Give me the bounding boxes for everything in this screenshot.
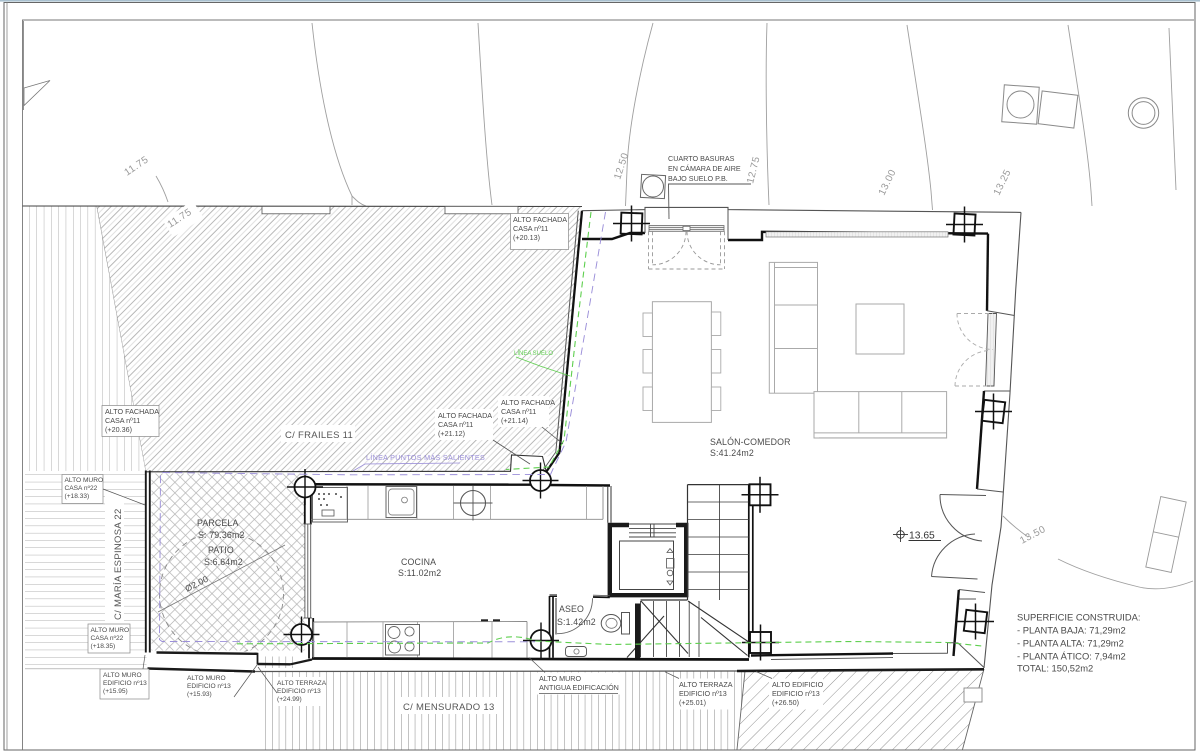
svg-text:- PLANTA BAJA: 71,29m2: - PLANTA BAJA: 71,29m2 (1017, 625, 1126, 636)
svg-text:(+21.12): (+21.12) (438, 429, 465, 438)
svg-text:COCINA: COCINA (401, 557, 436, 567)
svg-text:C/ MENSURADO 13: C/ MENSURADO 13 (403, 702, 495, 713)
svg-text:LÍNEA PUNTOS MÁS SALIENTES: LÍNEA PUNTOS MÁS SALIENTES (366, 453, 485, 462)
svg-text:CASA nº11: CASA nº11 (438, 420, 473, 429)
svg-text:(+15.95): (+15.95) (103, 688, 128, 695)
svg-text:- PLANTA ÁTICO: 7,94m2: - PLANTA ÁTICO: 7,94m2 (1017, 651, 1126, 662)
svg-text:(+20.36): (+20.36) (105, 425, 132, 434)
svg-text:ALTO TERRAZA: ALTO TERRAZA (679, 680, 733, 689)
svg-text:BAJO SUELO P.B.: BAJO SUELO P.B. (668, 174, 728, 183)
svg-text:CASA nº22: CASA nº22 (65, 485, 98, 492)
svg-text:(+18.33): (+18.33) (65, 493, 90, 500)
svg-text:SALÓN-COMEDOR: SALÓN-COMEDOR (710, 437, 791, 447)
svg-text:ALTO FACHADA: ALTO FACHADA (105, 407, 159, 416)
svg-text:ALTO MURO: ALTO MURO (187, 675, 226, 682)
svg-text:LÍNEA SUELO: LÍNEA SUELO (514, 350, 553, 357)
svg-text:CUARTO BASURAS: CUARTO BASURAS (668, 154, 735, 163)
svg-text:ALTO FACHADA: ALTO FACHADA (438, 411, 492, 420)
svg-text:(+20.13): (+20.13) (513, 233, 540, 242)
svg-text:PARCELA: PARCELA (197, 518, 238, 528)
svg-text:TOTAL: 150,52m2: TOTAL: 150,52m2 (1017, 663, 1093, 674)
svg-text:C/ MARÍA ESPINOSA 22: C/ MARÍA ESPINOSA 22 (113, 508, 124, 620)
svg-text:- PLANTA ALTA: 71,29m2: - PLANTA ALTA: 71,29m2 (1017, 638, 1124, 649)
svg-text:EDIFICIO nº13: EDIFICIO nº13 (277, 688, 321, 695)
svg-text:CASA nº11: CASA nº11 (105, 416, 140, 425)
svg-text:(+24.99): (+24.99) (277, 696, 302, 703)
svg-text:ALTO TERRAZA: ALTO TERRAZA (277, 680, 327, 687)
svg-text:ALTO FACHADA: ALTO FACHADA (513, 215, 567, 224)
svg-text:ALTO EDIFICIO: ALTO EDIFICIO (772, 680, 824, 689)
svg-text:ALTO MURO: ALTO MURO (539, 674, 581, 683)
svg-text:S:11.02m2: S:11.02m2 (398, 568, 441, 578)
svg-text:ANTIGUA EDIFICACIÓN: ANTIGUA EDIFICACIÓN (539, 683, 619, 692)
svg-text:S:6.64m2: S:6.64m2 (204, 557, 243, 567)
svg-text:(+25.01): (+25.01) (679, 698, 706, 707)
svg-text:EN CÁMARA DE AIRE: EN CÁMARA DE AIRE (668, 164, 741, 173)
svg-text:ALTO MURO: ALTO MURO (65, 477, 104, 484)
svg-text:EDIFICIO nº13: EDIFICIO nº13 (187, 683, 231, 690)
svg-text:EDIFICIO nº13: EDIFICIO nº13 (772, 689, 820, 698)
svg-text:(+26.50): (+26.50) (772, 698, 799, 707)
svg-text:CASA nº22: CASA nº22 (91, 635, 124, 642)
svg-text:EDIFICIO nº13: EDIFICIO nº13 (679, 689, 727, 698)
svg-text:PATIO: PATIO (208, 545, 234, 555)
svg-text:ALTO MURO: ALTO MURO (91, 627, 130, 634)
svg-text:CASA nº11: CASA nº11 (501, 407, 536, 416)
svg-text:(+18.35): (+18.35) (91, 643, 116, 650)
svg-text:SUPERFICIE CONSTRUIDA:: SUPERFICIE CONSTRUIDA: (1017, 612, 1140, 623)
svg-text:S:1.42m2: S:1.42m2 (557, 617, 596, 627)
svg-text:ALTO FACHADA: ALTO FACHADA (501, 398, 555, 407)
svg-text:S: 79.36m2: S: 79.36m2 (198, 530, 245, 540)
svg-text:EDIFICIO nº13: EDIFICIO nº13 (103, 680, 147, 687)
svg-text:ALTO MURO: ALTO MURO (103, 672, 142, 679)
svg-text:(+15.93): (+15.93) (187, 691, 212, 698)
svg-text:13.65: 13.65 (909, 531, 935, 542)
svg-text:(+21.14): (+21.14) (501, 416, 528, 425)
svg-text:ASEO: ASEO (559, 604, 584, 614)
svg-text:CASA nº11: CASA nº11 (513, 224, 548, 233)
svg-text:C/ FRAILES 11: C/ FRAILES 11 (285, 430, 353, 441)
svg-text:S:41.24m2: S:41.24m2 (710, 448, 754, 458)
